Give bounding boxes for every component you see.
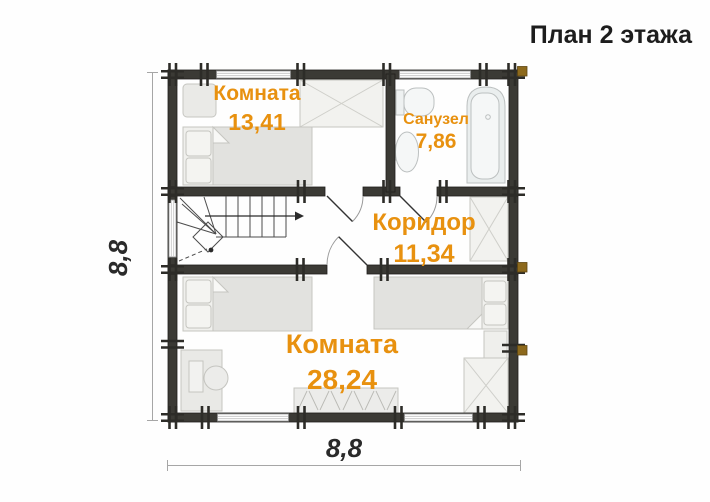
wall-top [168, 70, 518, 79]
dimension-tick [520, 460, 521, 471]
window [405, 414, 473, 421]
window [218, 414, 289, 421]
staircase [177, 197, 304, 262]
wall-mid-upper-b [363, 187, 400, 196]
dimension-width-line [167, 465, 521, 466]
room-name: Комната [182, 82, 332, 106]
bed [183, 277, 312, 331]
wardrobe [464, 358, 508, 413]
bed [374, 277, 508, 329]
dimension-tick [147, 72, 158, 73]
wall-mid-upper-a [168, 187, 325, 196]
dimension-height-label: 8,8 [103, 230, 131, 286]
chair [204, 366, 228, 390]
page-title: План 2 этажа [530, 21, 692, 50]
wall-left [168, 70, 177, 422]
stairs-direction-arrow [205, 212, 304, 221]
dimension-width-label: 8,8 [294, 433, 394, 464]
room-area: 11,34 [349, 240, 499, 269]
wall-bottom [168, 413, 518, 422]
window [217, 71, 291, 78]
room-name: Санузел [376, 111, 496, 129]
window [169, 200, 176, 257]
wall-mid-lower-a [168, 265, 327, 274]
room-label-bathroom: Санузел 7,86 [376, 111, 496, 154]
wall-right [509, 70, 518, 422]
room-area: 7,86 [376, 130, 496, 154]
desk [181, 350, 222, 411]
room-label-top: Комната 13,41 [182, 82, 332, 136]
nightstand [484, 331, 507, 358]
room-label-bottom: Комната 28,24 [252, 329, 432, 396]
floor-plan-page: План 2 этажа Комната 13,41 Санузел 7,86 … [0, 0, 710, 502]
wall-mid-upper-c [437, 187, 518, 196]
dimension-height-line [152, 73, 153, 421]
room-area: 13,41 [182, 109, 332, 136]
room-label-corridor: Коридор 11,34 [349, 209, 499, 269]
dimension-tick [147, 420, 158, 421]
room-name: Коридор [349, 209, 499, 237]
dimension-tick [167, 460, 168, 471]
window [400, 71, 471, 78]
room-area: 28,24 [252, 364, 432, 396]
log-end-accents [518, 67, 528, 356]
room-name: Комната [252, 329, 432, 360]
